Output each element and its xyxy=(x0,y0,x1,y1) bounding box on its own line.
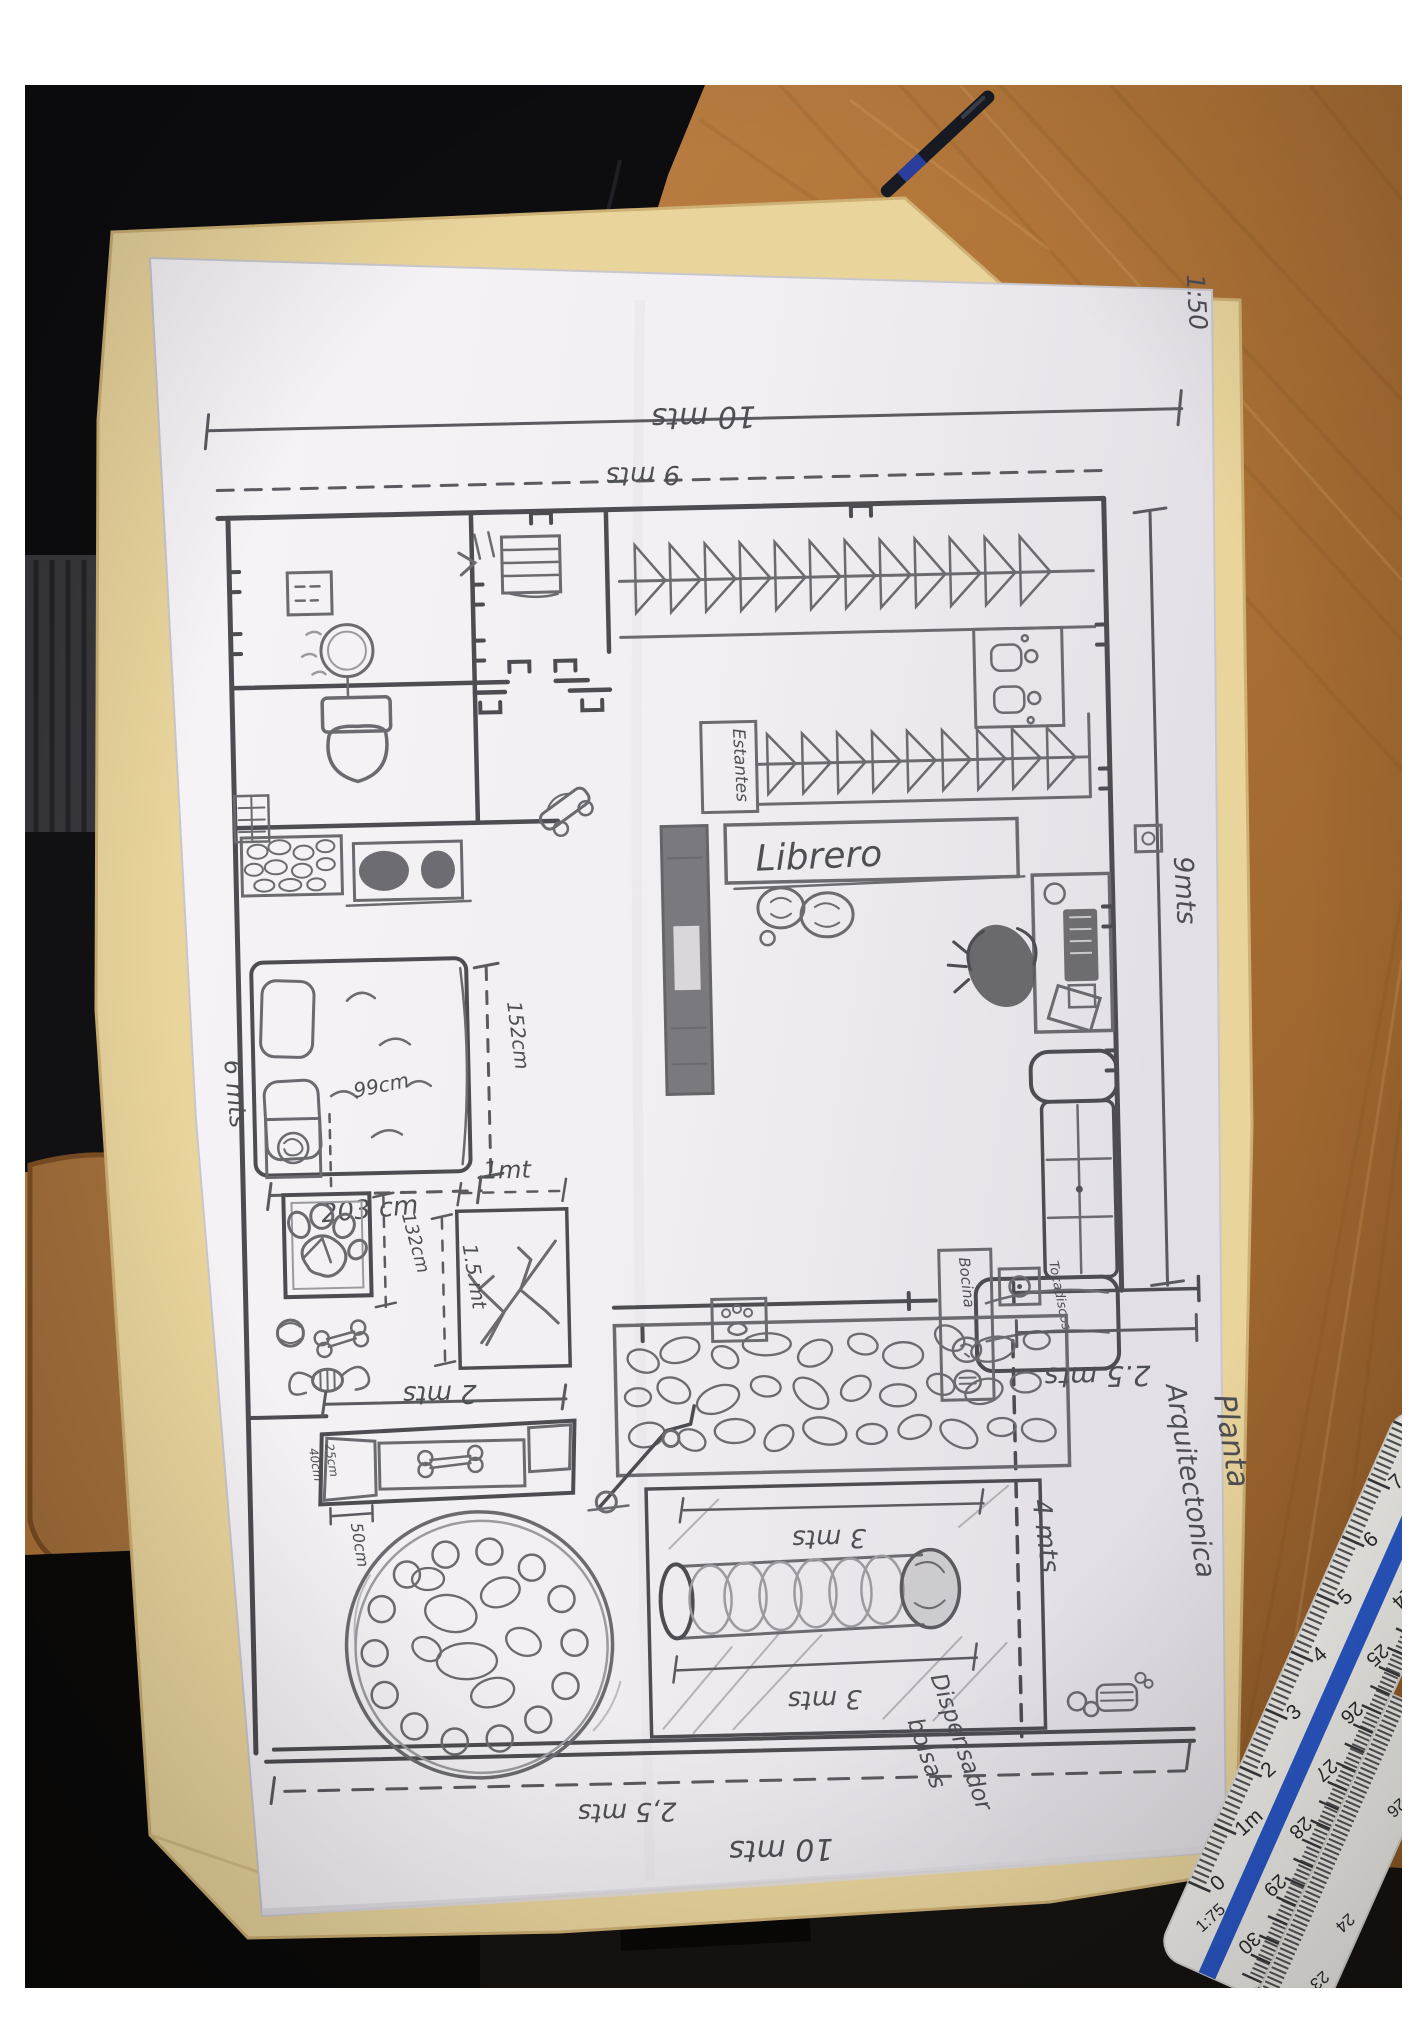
scale-note: 1:50 xyxy=(1181,273,1213,331)
dim-label-right-section: 2.5 mts xyxy=(1044,1359,1151,1394)
dim-label-right-side: 9mts xyxy=(1167,856,1202,926)
dim-label-bottom-inner: 2,5 mts xyxy=(578,1795,677,1827)
dim-label-tunnel-top: 3 mts xyxy=(792,1522,867,1554)
dim-label-top-outer: 10 mts xyxy=(651,398,756,435)
dim-label-scratch-width: 1mt xyxy=(482,1156,532,1185)
dim-label-bottom-outer: 10 mts xyxy=(729,1831,834,1868)
librero-label: Librero xyxy=(755,834,883,880)
monitor xyxy=(1063,909,1099,982)
svg-text:23: 23 xyxy=(1413,1524,1428,1555)
dim-label-feeder: 2 mts xyxy=(403,1378,478,1410)
estantes-label: Estantes xyxy=(728,728,752,803)
photo-frame: 1:50 10 mts 9 mts xyxy=(0,0,1428,2028)
dim-label-tunnel-bottom: 3 mts xyxy=(788,1683,863,1715)
dim-label-top-inner: 9 mts xyxy=(606,459,681,491)
media-unit xyxy=(661,826,713,1095)
photo-scene: 1:50 10 mts 9 mts xyxy=(0,0,1428,2028)
